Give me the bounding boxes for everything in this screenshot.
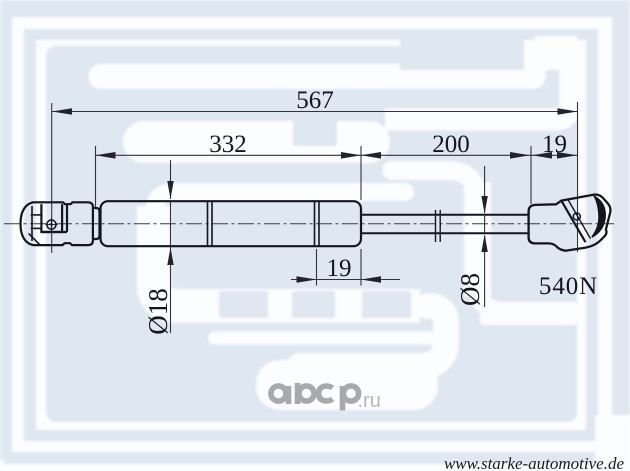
svg-text:Ø8: Ø8 <box>455 273 485 306</box>
svg-text:567: 567 <box>296 87 334 114</box>
svg-text:Ø18: Ø18 <box>143 288 173 335</box>
svg-text:200: 200 <box>432 131 470 158</box>
svg-text:19: 19 <box>542 131 567 158</box>
svg-text:www.starke-automotive.de: www.starke-automotive.de <box>444 454 624 471</box>
svg-text:19: 19 <box>327 255 352 282</box>
svg-text:.ru: .ru <box>358 390 381 412</box>
svg-text:332: 332 <box>209 131 247 158</box>
svg-text:540N: 540N <box>539 273 598 300</box>
